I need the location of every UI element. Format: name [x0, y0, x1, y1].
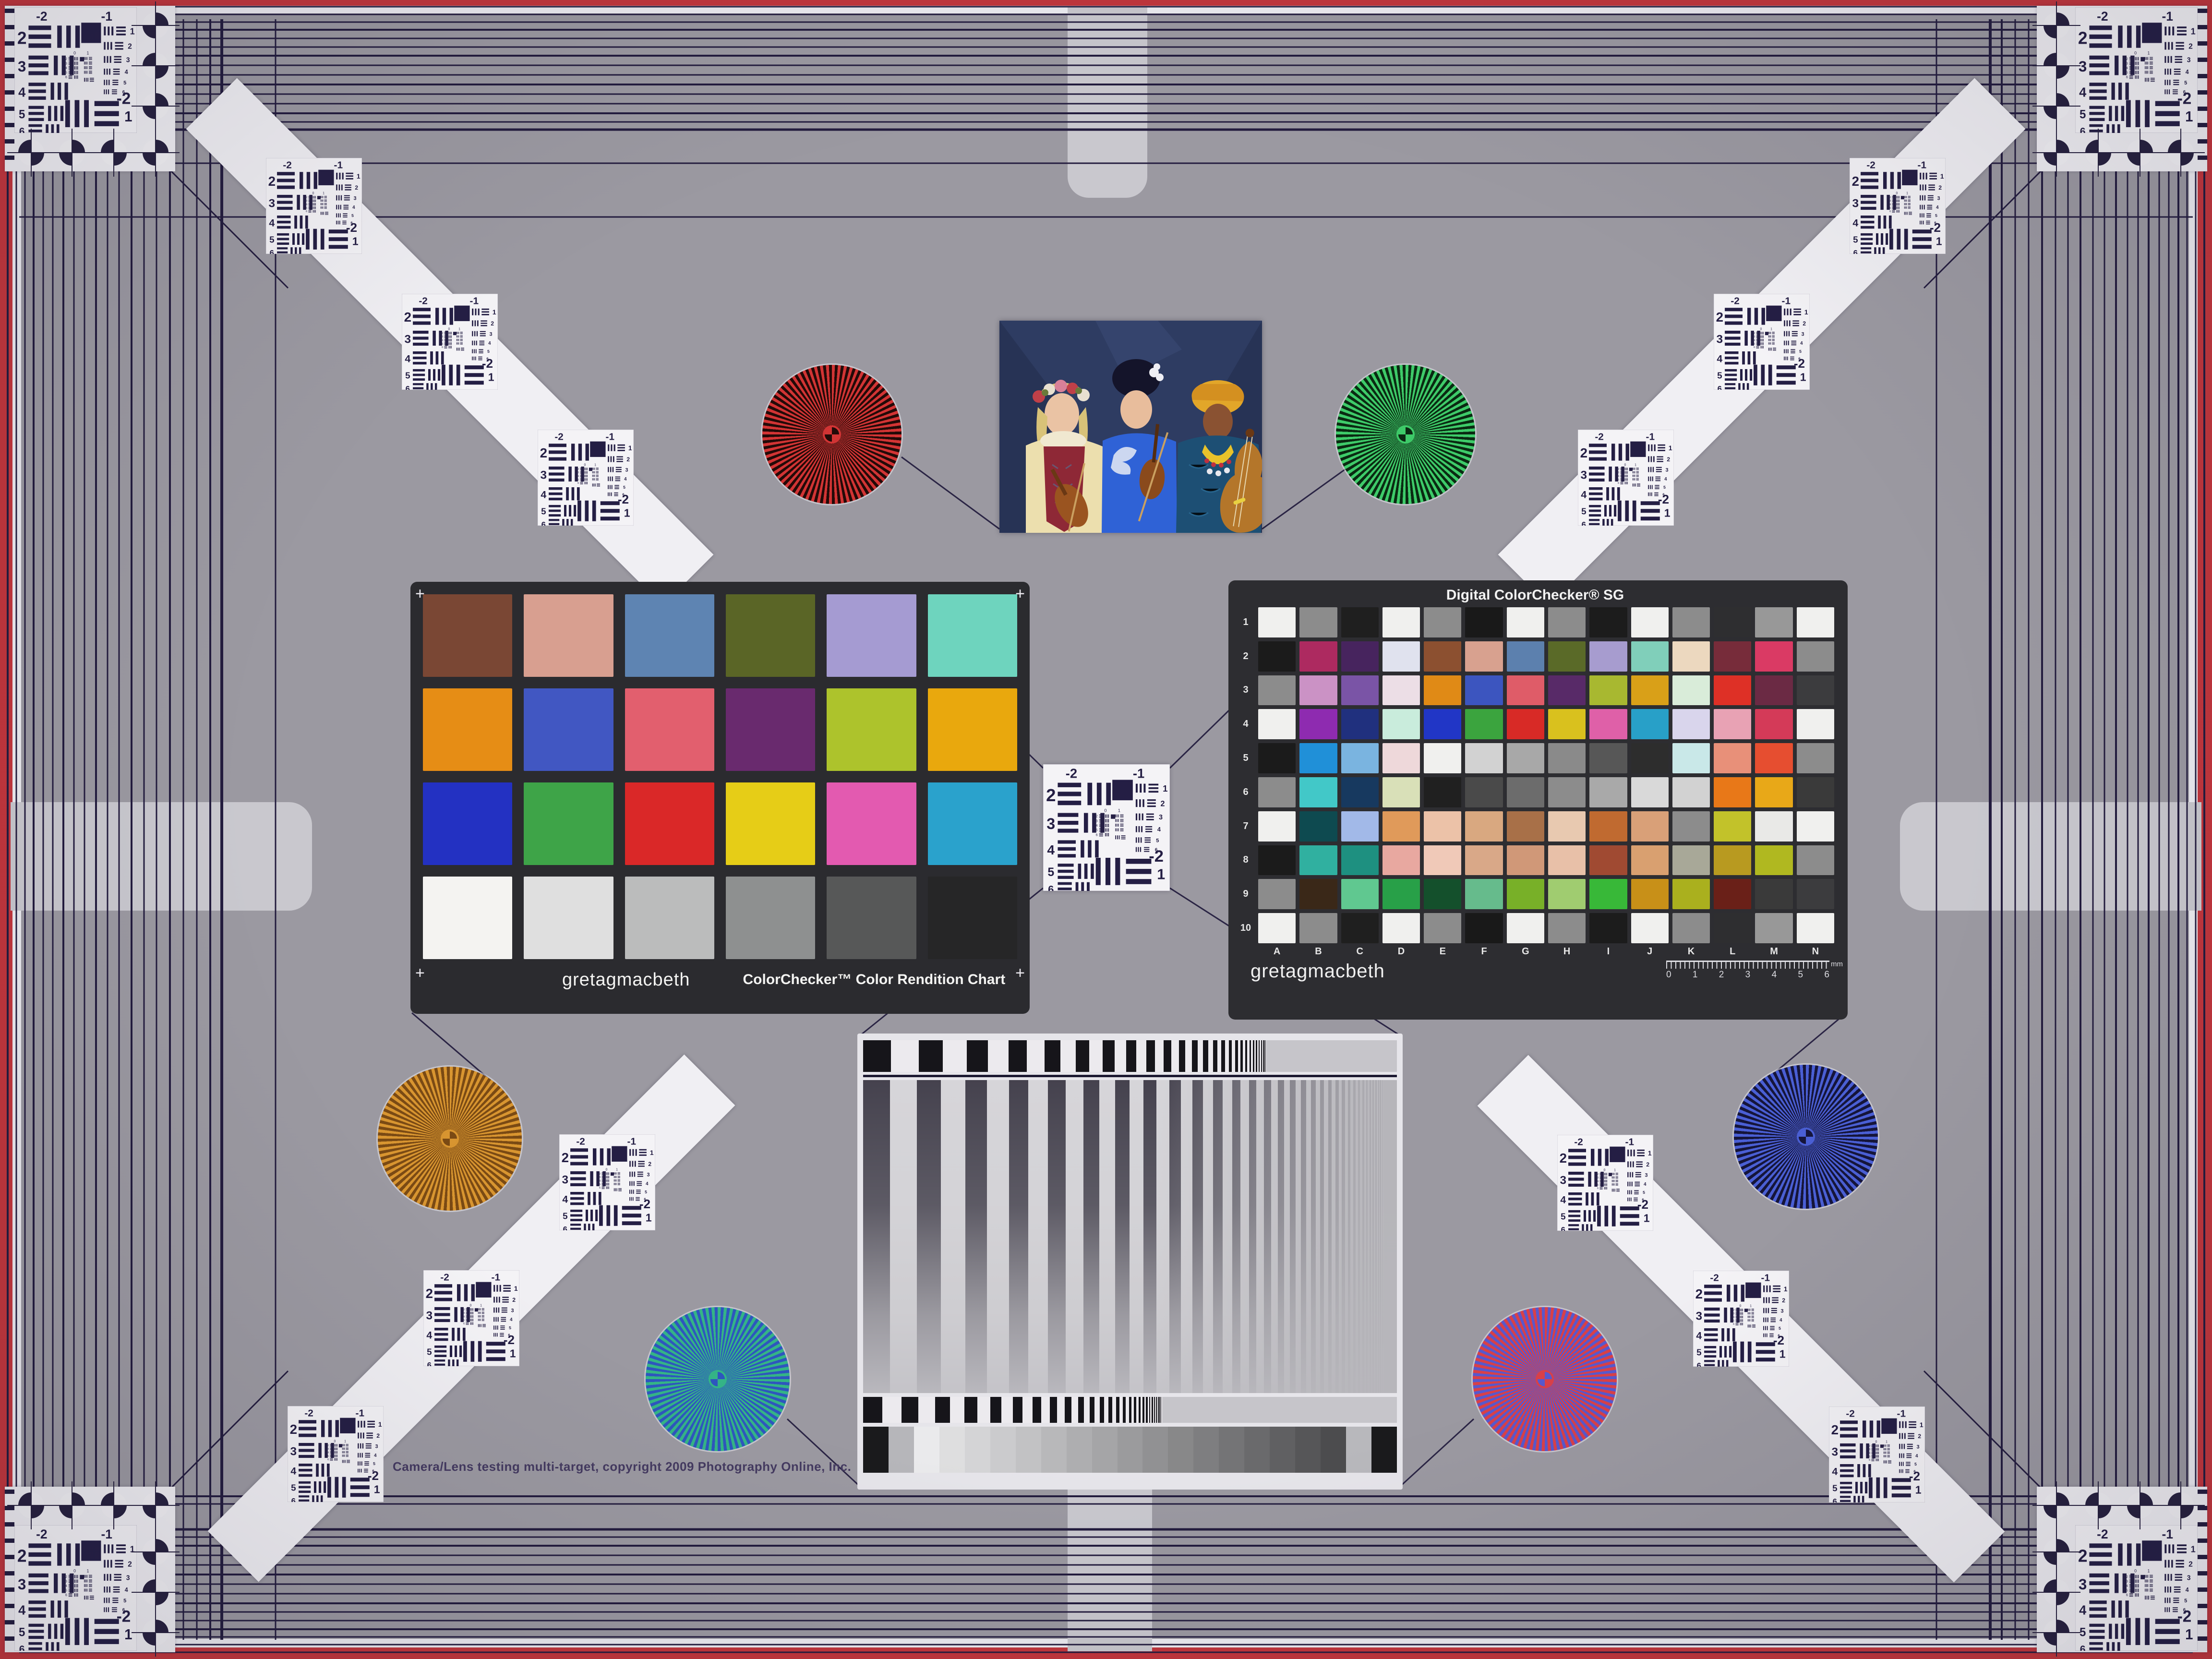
svg-text:6: 6	[1618, 482, 1619, 485]
svg-text:4: 4	[1560, 1194, 1566, 1205]
sg-column-letters: ABCDEFGHIJKLMN	[1258, 943, 1834, 960]
svg-text:4: 4	[599, 1179, 601, 1182]
sg-patch	[1548, 845, 1586, 876]
svg-text:3: 3	[1869, 1448, 1870, 1451]
strip-resolution-card: -2-123456123456-210123456	[1557, 1135, 1653, 1231]
cc24-patch	[524, 594, 613, 677]
chirp-bar	[1263, 1040, 1264, 1072]
sg-patch	[1424, 641, 1461, 672]
svg-text:-2: -2	[1710, 1273, 1719, 1284]
svg-text:2: 2	[1803, 320, 1806, 327]
sg-patch	[1382, 811, 1420, 842]
svg-text:6: 6	[1869, 1459, 1870, 1462]
svg-text:3: 3	[65, 1580, 67, 1583]
cc24-patch	[928, 688, 1017, 771]
svg-text:2: 2	[491, 320, 494, 327]
svg-text:-2: -2	[1595, 432, 1603, 443]
svg-text:1: 1	[1669, 444, 1672, 452]
svg-text:3: 3	[2126, 62, 2128, 65]
svg-text:3: 3	[126, 1574, 130, 1581]
registration-fiducial	[2085, 140, 2111, 166]
sg-patch	[1299, 879, 1337, 909]
svg-text:-1: -1	[1133, 766, 1144, 781]
svg-text:1: 1	[616, 1168, 618, 1171]
svg-text:3: 3	[1696, 1310, 1703, 1322]
sg-column-label: F	[1465, 943, 1503, 960]
sg-patch	[1755, 913, 1792, 943]
cc24-patch	[625, 782, 714, 865]
sg-patch	[1589, 879, 1627, 909]
svg-text:6: 6	[270, 249, 274, 254]
sg-patch	[1589, 641, 1627, 672]
sg-patch	[1258, 743, 1296, 773]
sg-patch	[1714, 675, 1751, 706]
sg-patch	[1341, 777, 1379, 807]
sg-patch	[1548, 675, 1586, 706]
svg-text:-1: -1	[101, 9, 112, 24]
sg-patch	[1631, 879, 1669, 909]
svg-text:2: 2	[65, 1575, 67, 1579]
svg-text:4: 4	[327, 1451, 329, 1454]
svg-text:2: 2	[404, 310, 411, 325]
svg-text:1: 1	[1906, 192, 1908, 195]
ruler-number: 6	[1824, 970, 1829, 980]
chirp-bar	[1245, 1040, 1247, 1072]
sg-patch	[1548, 777, 1586, 807]
usaf-resolution-target: -2-123456123456-210123456	[2075, 7, 2198, 133]
svg-text:4: 4	[2186, 69, 2189, 75]
sg-patch	[1341, 641, 1379, 672]
svg-text:-1: -1	[1646, 432, 1655, 443]
svg-text:-2: -2	[576, 1136, 585, 1147]
svg-text:4: 4	[18, 1602, 26, 1617]
cc24-patch	[827, 594, 916, 677]
svg-text:5: 5	[1799, 349, 1802, 354]
svg-text:0: 0	[470, 1304, 472, 1307]
svg-text:3: 3	[1046, 815, 1055, 832]
svg-text:5: 5	[442, 343, 443, 346]
wedge-step	[914, 1427, 939, 1473]
svg-text:5: 5	[291, 1483, 296, 1493]
svg-text:6: 6	[65, 1594, 67, 1597]
plus-mark: +	[415, 965, 425, 981]
sg-patch	[1672, 743, 1710, 773]
svg-text:5: 5	[1581, 506, 1586, 517]
svg-text:5: 5	[123, 80, 126, 86]
svg-text:5: 5	[487, 349, 490, 354]
svg-text:1: 1	[378, 1420, 382, 1428]
cc24-patch	[524, 877, 613, 959]
sg-patch	[1258, 675, 1296, 706]
svg-text:6: 6	[1561, 1226, 1565, 1231]
chirp-bar	[1126, 1040, 1136, 1072]
svg-text:0: 0	[1740, 1304, 1742, 1308]
chirp-bar	[1103, 1040, 1114, 1072]
sg-patch	[1631, 709, 1669, 739]
sweep-frequency-fade	[863, 1080, 1397, 1393]
svg-text:5: 5	[1663, 485, 1666, 490]
svg-text:5: 5	[599, 1183, 601, 1186]
svg-text:5: 5	[623, 485, 625, 490]
svg-text:1: 1	[458, 327, 460, 331]
svg-text:5: 5	[509, 1325, 511, 1330]
sg-brand: gretagmacbeth	[1250, 961, 1385, 982]
svg-text:5: 5	[1914, 1462, 1917, 1467]
svg-text:1: 1	[1163, 783, 1167, 793]
chirp-bar-strip-bottom	[863, 1397, 1397, 1423]
sweep-divider-line	[863, 1075, 1397, 1077]
center-usaf-resolution-target: -2-123456123456-210123456	[1043, 764, 1170, 891]
svg-text:6: 6	[1754, 346, 1755, 349]
registration-fiducial	[2085, 1492, 2111, 1518]
registration-fiducial	[143, 1579, 168, 1605]
sg-patch	[1507, 709, 1544, 739]
cc24-patch	[423, 688, 512, 771]
svg-text:-1: -1	[627, 1136, 636, 1147]
registration-fiducial	[18, 1492, 44, 1518]
chirp-bar	[1108, 1397, 1112, 1423]
svg-text:1: 1	[1936, 235, 1942, 248]
strip-resolution-card: -2-123456123456-210123456	[1850, 158, 1946, 254]
sg-column-label: H	[1548, 943, 1586, 960]
svg-text:1: 1	[624, 507, 630, 519]
chirp-unresolved-zone	[1266, 1040, 1397, 1072]
svg-text:2: 2	[463, 1309, 465, 1311]
svg-text:-2: -2	[1846, 1408, 1854, 1419]
svg-text:3: 3	[290, 1445, 297, 1458]
registration-fiducial	[143, 53, 168, 79]
svg-text:6: 6	[577, 482, 579, 485]
svg-text:-1: -1	[356, 1408, 364, 1419]
svg-text:-1: -1	[1782, 296, 1791, 307]
wedge-step	[1371, 1427, 1397, 1473]
chirp-bar	[935, 1397, 950, 1423]
chirp-bar	[1078, 1397, 1084, 1423]
sg-patch	[1382, 675, 1420, 706]
sg-column-label: L	[1714, 943, 1751, 960]
svg-text:2: 2	[2078, 28, 2088, 48]
svg-text:-2: -2	[368, 1468, 379, 1483]
wedge-step	[1168, 1427, 1193, 1473]
svg-text:3: 3	[2187, 1574, 2191, 1581]
registration-fiducial	[2044, 1492, 2069, 1518]
chirp-bar	[1100, 1397, 1104, 1423]
sg-patch	[1631, 607, 1669, 637]
colorchecker-sg-chart: Digital ColorChecker® SG 12345678910 ABC…	[1228, 580, 1848, 1020]
svg-text:4: 4	[442, 339, 443, 342]
svg-text:-2: -2	[2177, 89, 2192, 108]
registration-fiducial	[2044, 53, 2069, 79]
sg-patch	[1714, 607, 1751, 637]
svg-text:2: 2	[1646, 1161, 1649, 1168]
svg-text:-2: -2	[1773, 1333, 1784, 1347]
svg-text:6: 6	[2080, 126, 2086, 133]
svg-text:6: 6	[291, 1497, 296, 1502]
sg-patch	[1465, 675, 1503, 706]
svg-text:1: 1	[2191, 26, 2196, 36]
svg-text:3: 3	[1159, 814, 1163, 821]
svg-text:6: 6	[19, 1644, 25, 1651]
strip-resolution-card: -2-123456123456-210123456	[559, 1134, 655, 1230]
sg-patch	[1755, 675, 1792, 706]
sg-patch	[1465, 641, 1503, 672]
ruler-number: 5	[1798, 970, 1803, 980]
svg-text:2: 2	[1667, 456, 1670, 463]
cc24-patch	[423, 594, 512, 677]
svg-text:-1: -1	[101, 1527, 112, 1541]
svg-text:2: 2	[1754, 332, 1755, 335]
chirp-bar	[1146, 1040, 1155, 1072]
star-center-dot	[1538, 1372, 1552, 1386]
svg-text:1: 1	[352, 235, 359, 248]
sg-patch	[1507, 675, 1544, 706]
wedge-step	[939, 1427, 965, 1473]
sg-patch	[1589, 675, 1627, 706]
ruler-ticks	[2198, 1490, 2207, 1649]
chirp-bar	[1116, 1397, 1119, 1423]
sg-patch	[1299, 743, 1337, 773]
svg-text:4: 4	[65, 67, 67, 70]
star-center-dot	[825, 427, 839, 442]
sg-patch	[1507, 777, 1544, 807]
sg-patch	[1341, 709, 1379, 739]
strip-resolution-card: -2-123456123456-210123456	[1578, 430, 1674, 526]
svg-text:0: 0	[606, 1168, 608, 1171]
chirp-bar	[1250, 1040, 1251, 1072]
svg-text:-2: -2	[346, 220, 357, 235]
svg-text:4: 4	[1779, 1318, 1782, 1323]
svg-text:-1: -1	[1761, 1273, 1770, 1284]
chirp-bar	[1123, 1397, 1126, 1423]
sg-column-label: M	[1755, 943, 1792, 960]
wedge-step	[889, 1427, 914, 1473]
sg-row-label: 5	[1236, 743, 1255, 773]
svg-text:0: 0	[2134, 1569, 2137, 1574]
svg-text:3: 3	[2079, 1575, 2087, 1593]
svg-text:4: 4	[1581, 489, 1587, 500]
svg-text:4: 4	[1852, 217, 1858, 228]
sg-patch	[1589, 811, 1627, 842]
svg-text:5: 5	[19, 108, 25, 121]
strip-resolution-card: -2-123456123456-210123456	[1714, 294, 1810, 390]
svg-text:5: 5	[1779, 1326, 1781, 1331]
chirp-bar	[1146, 1397, 1147, 1423]
svg-text:2: 2	[17, 28, 27, 48]
svg-text:4: 4	[624, 477, 627, 482]
siemens-star-red	[762, 365, 902, 504]
sg-title: Digital ColorChecker® SG	[1236, 585, 1834, 607]
sg-column-label: J	[1631, 943, 1669, 960]
svg-text:3: 3	[2126, 1580, 2128, 1583]
wedge-step	[1041, 1427, 1067, 1473]
svg-text:-2: -2	[1930, 220, 1941, 235]
siemens-star-blue	[1734, 1065, 1878, 1209]
svg-text:2: 2	[626, 456, 630, 463]
svg-text:3: 3	[18, 1575, 26, 1593]
svg-text:-2: -2	[1909, 1469, 1920, 1483]
svg-text:3: 3	[1618, 471, 1619, 474]
svg-text:5: 5	[327, 1455, 329, 1458]
svg-text:3: 3	[2079, 58, 2087, 75]
sg-patch	[1424, 879, 1461, 909]
sg-patch	[1424, 709, 1461, 739]
svg-text:2: 2	[1046, 785, 1056, 805]
sg-patch	[1631, 743, 1669, 773]
svg-text:5: 5	[1643, 1190, 1645, 1195]
chirp-bar	[1154, 1397, 1155, 1423]
svg-text:2: 2	[17, 1546, 27, 1566]
cc24-patch	[726, 782, 815, 865]
sg-patch	[1797, 709, 1834, 739]
svg-text:6: 6	[2080, 1644, 2086, 1651]
sg-patch	[1548, 811, 1586, 842]
svg-text:5: 5	[2184, 1598, 2187, 1604]
sg-patch	[1382, 641, 1420, 672]
sg-patch	[1258, 641, 1296, 672]
svg-text:5: 5	[2184, 80, 2187, 86]
cc24-patch	[726, 877, 815, 959]
svg-text:6: 6	[463, 1322, 465, 1325]
svg-text:2: 2	[2078, 1546, 2088, 1566]
svg-text:1: 1	[488, 371, 494, 384]
svg-text:4: 4	[463, 1315, 465, 1318]
sg-patch	[1755, 777, 1792, 807]
sg-patch	[1465, 913, 1503, 943]
svg-text:-2: -2	[639, 1197, 650, 1211]
svg-text:2: 2	[290, 1422, 297, 1437]
sg-column-label: G	[1507, 943, 1544, 960]
svg-text:0: 0	[1875, 1440, 1877, 1443]
sg-column-label: E	[1424, 943, 1461, 960]
svg-text:5: 5	[1618, 479, 1619, 481]
chirp-bar	[1158, 1397, 1159, 1423]
ruler-unit: mm	[1831, 960, 1843, 968]
svg-text:-2: -2	[117, 1607, 131, 1626]
registration-fiducial	[2044, 93, 2069, 119]
svg-text:4: 4	[2126, 67, 2128, 70]
svg-text:6: 6	[327, 1458, 329, 1461]
sg-patch	[1507, 641, 1544, 672]
svg-text:6: 6	[65, 76, 67, 79]
sg-patch	[1465, 845, 1503, 876]
sg-patch	[1299, 913, 1337, 943]
ruler-number: 0	[1666, 970, 1671, 980]
sg-row-label: 10	[1236, 913, 1255, 943]
sg-patch	[1382, 845, 1420, 876]
svg-text:1: 1	[650, 1149, 654, 1156]
chirp-bar	[863, 1397, 882, 1423]
chirp-bar	[1203, 1040, 1208, 1072]
svg-text:2: 2	[2188, 1561, 2193, 1569]
svg-text:-2: -2	[618, 492, 629, 506]
sg-patch	[1424, 811, 1461, 842]
plus-mark: +	[415, 586, 425, 602]
svg-text:2: 2	[1782, 1297, 1785, 1304]
svg-text:3: 3	[511, 1308, 514, 1313]
svg-text:4: 4	[1597, 1180, 1599, 1183]
svg-text:4: 4	[426, 1329, 432, 1341]
svg-text:-1: -1	[2162, 1527, 2173, 1541]
chirp-bar	[1235, 1040, 1238, 1072]
registration-fiducial	[2044, 1579, 2069, 1605]
svg-text:5: 5	[577, 479, 579, 481]
svg-text:6: 6	[427, 1361, 432, 1366]
cc24-patch	[726, 594, 815, 677]
sg-patch	[1797, 845, 1834, 876]
svg-text:4: 4	[2186, 1587, 2189, 1593]
svg-text:2: 2	[1560, 1151, 1567, 1166]
svg-text:2: 2	[1889, 196, 1891, 199]
svg-text:5: 5	[427, 1347, 432, 1357]
svg-text:5: 5	[1853, 235, 1858, 245]
sg-patch	[1672, 709, 1710, 739]
sg-patch	[1258, 777, 1296, 807]
sg-patch	[1797, 811, 1834, 842]
chirp-bar	[1129, 1397, 1131, 1423]
svg-text:6: 6	[406, 385, 410, 390]
svg-text:1: 1	[1920, 1421, 1923, 1429]
chirp-bar	[1090, 1397, 1095, 1423]
chirp-bar	[902, 1397, 918, 1423]
svg-text:3: 3	[1802, 331, 1804, 337]
sg-patch-grid	[1258, 607, 1834, 943]
svg-text:1: 1	[130, 26, 135, 36]
chirp-bar	[1065, 1397, 1071, 1423]
svg-text:5: 5	[1869, 1455, 1870, 1458]
sg-patch	[1258, 607, 1296, 637]
sg-row-label: 1	[1236, 607, 1255, 637]
wedge-step	[1219, 1427, 1244, 1473]
sg-patch	[1382, 777, 1420, 807]
sg-patch	[1258, 811, 1296, 842]
svg-text:3: 3	[562, 1173, 569, 1186]
svg-text:1: 1	[130, 1544, 135, 1554]
sg-patch	[1299, 845, 1337, 876]
svg-text:3: 3	[1645, 1172, 1648, 1178]
registration-fiducial	[2044, 140, 2069, 166]
svg-text:2: 2	[1695, 1286, 1703, 1301]
svg-text:-2: -2	[283, 160, 291, 171]
sg-patch	[1424, 743, 1461, 773]
sg-patch	[1382, 743, 1420, 773]
sg-patch	[1755, 709, 1792, 739]
strip-resolution-card: -2-123456123456-210123456	[1829, 1407, 1925, 1503]
svg-text:4: 4	[2079, 1602, 2087, 1617]
svg-text:5: 5	[1754, 343, 1755, 346]
sg-patch	[1714, 709, 1751, 739]
svg-text:-2: -2	[554, 432, 563, 443]
registration-fiducial	[2127, 1492, 2153, 1518]
svg-text:1: 1	[493, 308, 496, 316]
svg-text:3: 3	[1917, 1444, 1920, 1450]
svg-text:5: 5	[1935, 213, 1937, 218]
svg-text:5: 5	[1096, 829, 1098, 832]
svg-text:4: 4	[125, 69, 128, 75]
svg-text:4: 4	[1869, 1452, 1870, 1455]
sg-column-label: K	[1672, 943, 1710, 960]
chirp-unresolved-zone	[1162, 1397, 1397, 1423]
chirp-bar	[990, 1397, 1001, 1423]
svg-text:1: 1	[2185, 108, 2193, 124]
ruler-ticks	[2198, 9, 2207, 168]
chirp-bar	[1164, 1040, 1171, 1072]
svg-text:4: 4	[65, 1585, 67, 1588]
svg-text:0: 0	[334, 1440, 336, 1443]
chirp-bar	[1259, 1040, 1260, 1072]
cc24-patch	[928, 782, 1017, 865]
svg-text:2: 2	[1618, 468, 1619, 471]
svg-text:3: 3	[647, 1172, 650, 1178]
